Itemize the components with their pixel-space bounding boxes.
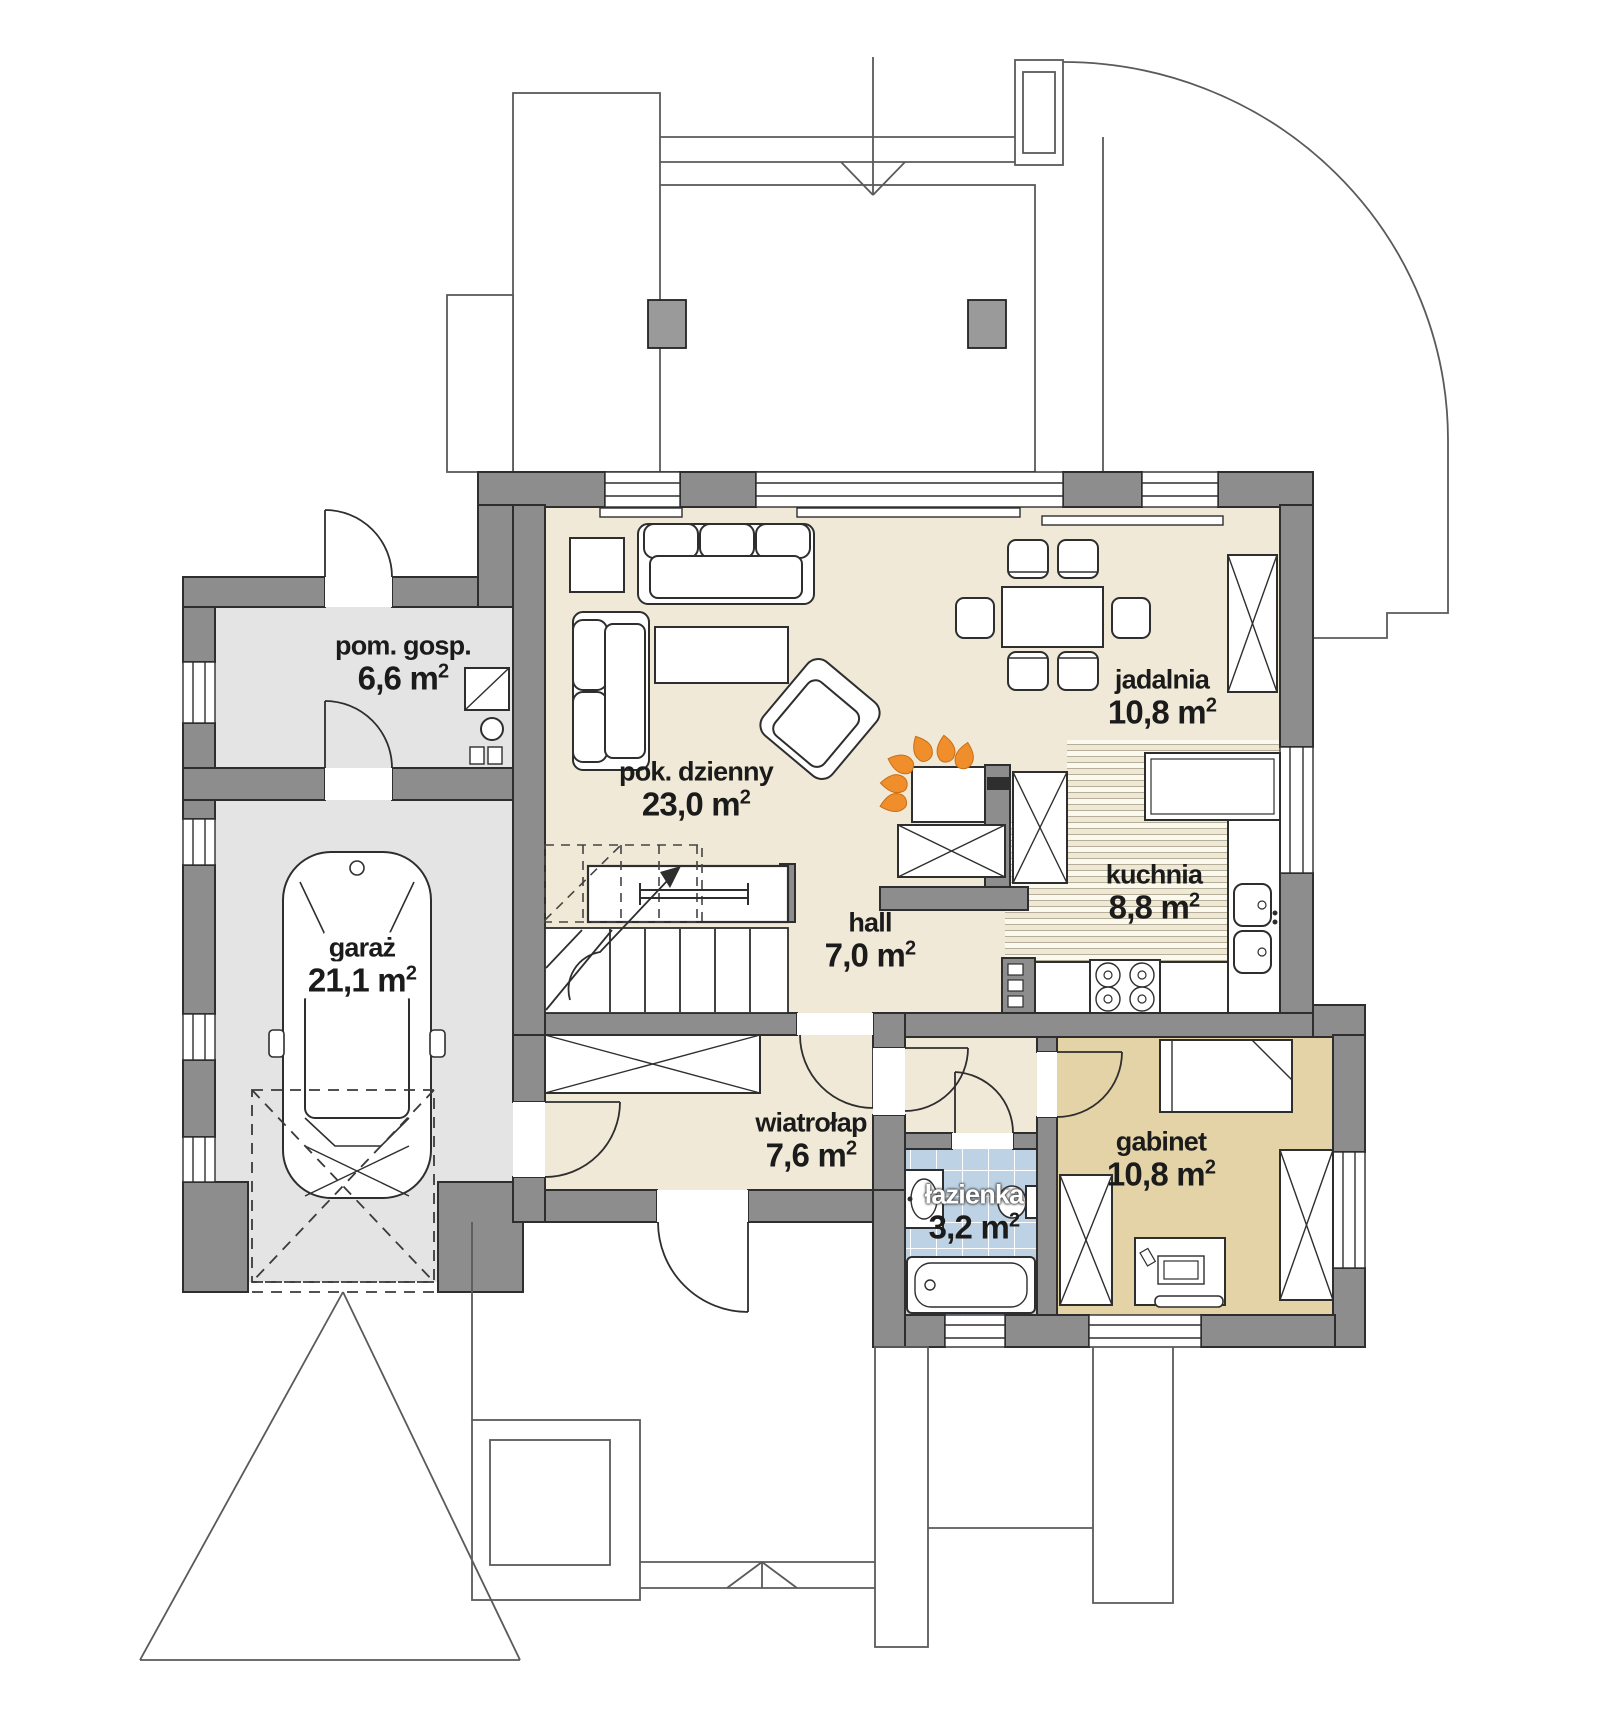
door-pom-gosp-exterior <box>325 510 392 607</box>
window-lazienka-bottom <box>945 1315 1005 1347</box>
dining-cabinet <box>1228 555 1277 692</box>
window-gabinet-right <box>1333 1152 1365 1268</box>
stove <box>1090 960 1160 1013</box>
window-garaz-left-2 <box>183 1014 215 1060</box>
chimney-flue <box>1023 72 1055 153</box>
room-label-wiatrolap: wiatrołap 7,6 m2 <box>755 1107 866 1174</box>
window-top-3 <box>1142 472 1218 507</box>
kitchen-counter-bottom <box>1035 960 1228 1013</box>
car-mirror <box>430 1030 445 1057</box>
terrace-strip-left <box>875 1347 928 1647</box>
car <box>269 852 445 1198</box>
kitchen-sink-counter <box>1228 820 1280 1013</box>
window-pom-gosp-left <box>183 662 215 723</box>
desk-chair <box>1155 1296 1223 1307</box>
room-floor-corridor <box>905 1037 1040 1133</box>
window-gabinet-bottom <box>1089 1315 1201 1347</box>
sofa <box>638 524 814 604</box>
room-label-kuchnia: kuchnia 8,8 m2 <box>1106 859 1202 926</box>
loveseat <box>573 612 649 770</box>
kitchen-counter-top <box>1145 753 1280 820</box>
upper-floor-wing <box>513 93 660 472</box>
dining-chair <box>956 598 994 638</box>
dining-table <box>1002 587 1103 647</box>
terrace-strip-right <box>1093 1347 1173 1603</box>
room-label-pom-gosp: pom. gosp. 6,6 m2 <box>335 630 471 697</box>
fireplace-cabinet <box>898 825 1005 877</box>
driveway-gable-left <box>140 1292 343 1660</box>
room-label-gabinet: gabinet 10,8 m2 <box>1107 1126 1215 1193</box>
window-top-2 <box>756 472 1063 507</box>
floor-plan: pom. gosp. 6,6 m2 garaż 21,1 m2 pok. dzi… <box>0 0 1600 1727</box>
dining-chair <box>1112 598 1150 638</box>
desk <box>1135 1238 1225 1307</box>
entrance-arrow <box>727 1562 762 1588</box>
porch-step <box>490 1440 610 1565</box>
wardrobe-right <box>1280 1150 1333 1300</box>
daybed <box>1160 1040 1292 1112</box>
room-label-garaz: garaż 21,1 m2 <box>303 932 421 999</box>
window-top-1 <box>605 472 680 507</box>
coffee-table <box>655 627 788 683</box>
room-label-hall: hall 7,0 m2 <box>825 907 916 974</box>
window-garaz-left-3 <box>183 1137 215 1182</box>
hall-wardrobe <box>545 1035 760 1093</box>
window-garaz-left-1 <box>183 819 215 865</box>
driveway-gable-right <box>343 1292 520 1660</box>
floor-plan-drawing <box>0 0 1600 1727</box>
stairs-lower-flight <box>545 928 788 1013</box>
window-kitchen-right <box>1280 747 1313 873</box>
room-label-jadalnia: jadalnia 10,8 m2 <box>1108 664 1216 731</box>
boiler <box>481 718 503 740</box>
corner-cabinet <box>1013 772 1067 883</box>
car-mirror <box>269 1030 284 1057</box>
side-table <box>570 538 624 592</box>
terrace-column <box>648 300 686 348</box>
porch <box>472 1420 640 1600</box>
room-label-pok-dzienny: pok. dzienny 23,0 m2 <box>619 756 773 823</box>
terrace-column <box>968 300 1006 348</box>
kitchen-radiator <box>1008 964 1023 1007</box>
room-label-lazienka: łazienka 3,2 m2 <box>925 1179 1024 1246</box>
upper-floor-step <box>447 295 513 472</box>
bathtub <box>907 1257 1035 1313</box>
wardrobe-left <box>1060 1175 1112 1305</box>
car-roof <box>305 990 409 1118</box>
door-entrance <box>657 1190 748 1312</box>
